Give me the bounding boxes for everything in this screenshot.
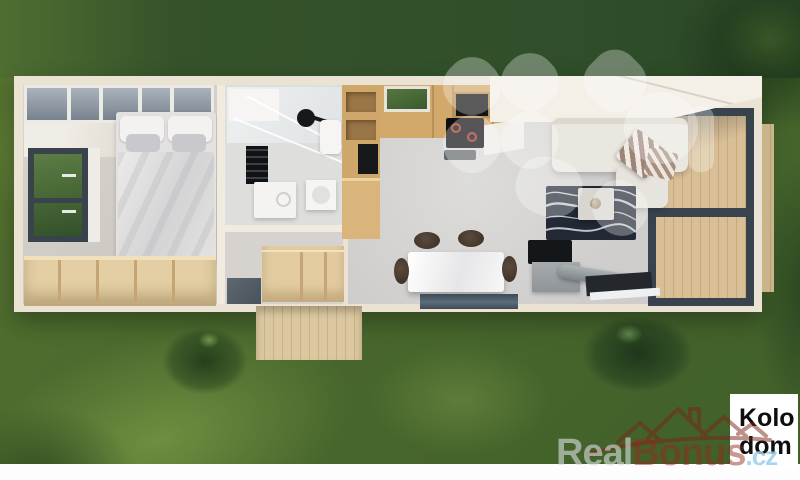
bedroom-storage-cubbies <box>24 256 216 306</box>
cubby-divider <box>96 260 99 302</box>
kitchen-tall-shelving <box>342 85 380 236</box>
bed-pillow-accent <box>172 134 206 152</box>
terrace-wall-corner <box>754 290 762 306</box>
fireplace-box <box>528 240 572 264</box>
shelf-compartment <box>27 88 67 120</box>
bench-divider <box>324 252 327 300</box>
bedroom-window <box>28 148 88 242</box>
entrance-deck-steps <box>256 306 362 360</box>
bathroom-sink <box>306 180 336 210</box>
washer-door-icon <box>276 192 291 207</box>
sink-basin <box>312 186 330 204</box>
bathroom-hall-wall <box>225 225 343 232</box>
open-shelf <box>346 120 376 140</box>
cubby-divider <box>58 260 61 302</box>
window-crossbar <box>34 198 82 203</box>
watermark-shape <box>582 170 658 246</box>
watermark-petal <box>432 104 511 183</box>
kolodom-logo-line2: dom <box>739 434 792 459</box>
bottom-white-strip <box>0 464 800 480</box>
clover-petals-watermark <box>420 40 740 240</box>
watermark-shape <box>688 106 714 172</box>
floorplan-render-scene: Kolo dom RealBonus.cz <box>0 0 800 480</box>
interior-wall <box>217 85 225 304</box>
hall-bench-storage <box>262 246 344 302</box>
dining-table <box>408 252 504 292</box>
window-sill <box>88 148 100 242</box>
kolodom-logo: Kolo dom <box>730 394 798 470</box>
double-bed <box>116 112 216 264</box>
bed-pillow-accent <box>126 134 160 152</box>
window-handle <box>62 210 76 213</box>
ladder-radiator <box>246 146 268 184</box>
bench-divider <box>300 252 303 300</box>
kitchen-lower-cabinet <box>342 178 380 239</box>
shower-ceiling-panel <box>229 89 279 121</box>
cubby-divider <box>172 260 175 302</box>
bench-lid-line <box>262 250 344 252</box>
open-shelf <box>346 92 376 112</box>
built-in-oven <box>358 144 378 174</box>
bed-duvet <box>118 152 214 262</box>
shelf-compartment <box>71 88 99 120</box>
washing-machine <box>254 182 296 218</box>
kolodom-logo-line1: Kolo <box>739 406 795 431</box>
window-handle <box>62 174 76 177</box>
toilet <box>320 120 341 154</box>
cubby-divider <box>134 260 137 302</box>
entry-door-glass <box>227 278 261 304</box>
dining-stool <box>502 256 517 282</box>
side-deck-strip <box>762 124 774 292</box>
dining-stool <box>394 258 409 284</box>
bottom-wall-window <box>420 294 518 309</box>
watermark-shape <box>624 92 698 164</box>
